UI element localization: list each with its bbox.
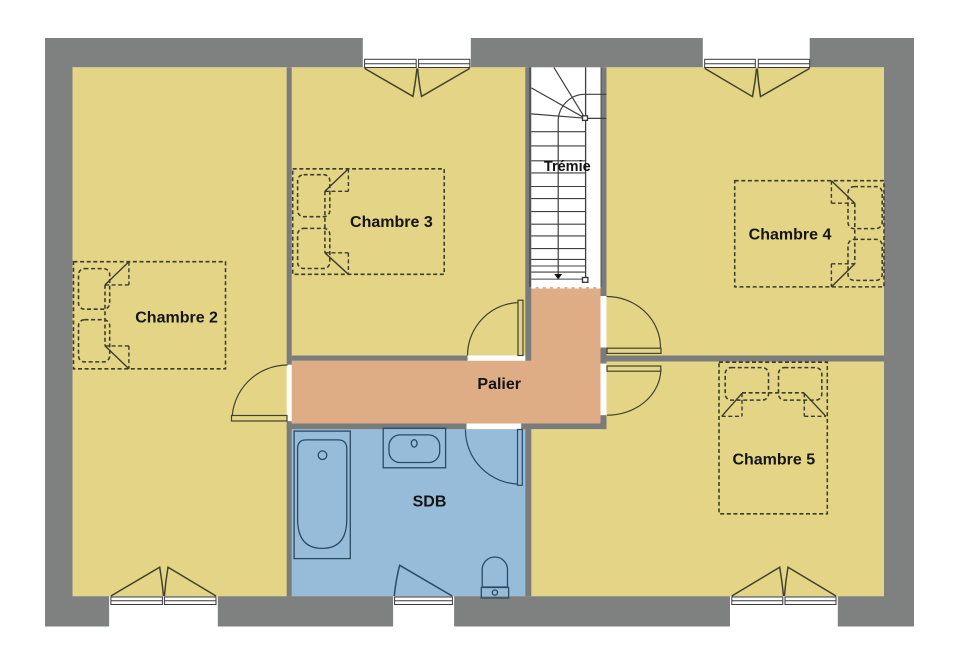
svg-text:Palier: Palier: [477, 376, 521, 393]
svg-text:Trémie: Trémie: [544, 159, 591, 175]
svg-text:Chambre 3: Chambre 3: [350, 214, 433, 231]
svg-text:Chambre 5: Chambre 5: [732, 452, 815, 469]
svg-text:SDB: SDB: [413, 494, 447, 511]
svg-text:Chambre 4: Chambre 4: [749, 227, 832, 244]
svg-text:Chambre 2: Chambre 2: [135, 310, 218, 327]
